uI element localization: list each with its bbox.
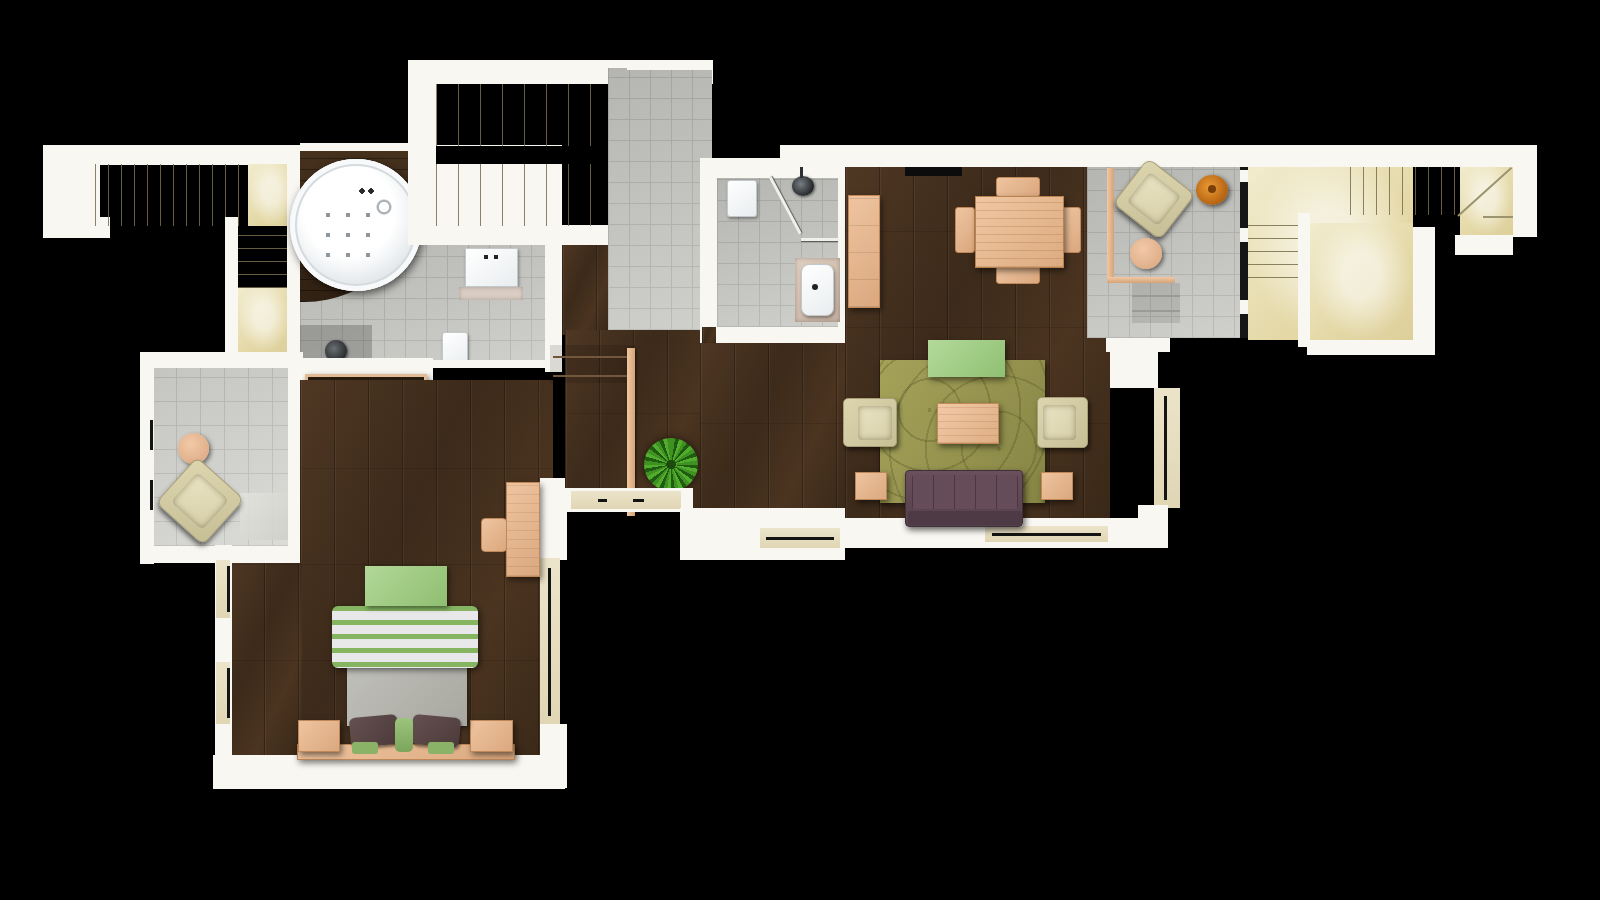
wall-notch — [1240, 228, 1248, 242]
desk-chair — [481, 518, 507, 552]
tall-cabinet — [848, 195, 880, 308]
west-stair-flight-vertical — [238, 226, 290, 288]
sofa-seat — [912, 475, 1018, 509]
stairwell-void-band — [436, 146, 608, 164]
dining-table — [975, 196, 1064, 268]
dining-chair-top — [996, 177, 1040, 197]
window-tick — [227, 668, 230, 718]
window-tick — [992, 533, 1101, 536]
terrace-west-step-patch — [240, 493, 292, 540]
west-stair-lower-run — [238, 288, 290, 352]
reading-rail-vertical — [1107, 168, 1114, 283]
living-right-wall-jut — [1110, 352, 1158, 388]
hallway-step-edge-1 — [553, 356, 633, 358]
reading-rail-horizontal — [1107, 277, 1175, 283]
bed-foot-bench-green — [365, 566, 447, 606]
dining-chair-right — [1061, 207, 1081, 253]
window-tick — [548, 568, 551, 716]
armchair-cushion — [858, 406, 892, 440]
washbasin-bath2 — [801, 264, 834, 316]
bath2-left-wall — [700, 158, 717, 328]
toilet-bath2 — [727, 180, 757, 217]
window-tick — [150, 480, 153, 510]
stairwell-lower-flight — [436, 164, 608, 226]
hall-bottom-window — [571, 491, 681, 509]
terrace-west-top-wall — [140, 352, 303, 368]
east-bottom-wall — [1307, 340, 1435, 355]
window-tick — [766, 537, 834, 540]
bedroom-bottom-wall — [213, 755, 565, 789]
side-table-west — [855, 472, 887, 500]
east-stair-divider-wall — [1298, 213, 1310, 347]
bed-green-accent — [428, 742, 454, 754]
bedroom-right-corner-wall — [540, 724, 567, 788]
living-room-wood-floor-left — [700, 343, 845, 520]
lamp-center — [1208, 185, 1216, 193]
bath1-bottom-thin-wall — [430, 360, 548, 368]
hallway-steps-zone — [550, 345, 635, 383]
window-tick — [633, 499, 644, 502]
bath1-bath-mat — [459, 287, 523, 300]
basin-drain — [812, 284, 818, 290]
reading-corner-step — [1132, 283, 1180, 323]
bed-green-accent — [352, 742, 378, 754]
nightstand-left — [298, 720, 340, 752]
stair-hall-tile-floor — [608, 68, 712, 330]
bath2-bottom-wall — [700, 327, 845, 343]
shower-head-icon — [792, 176, 814, 196]
sofa-backrest — [908, 511, 1022, 525]
side-table-east — [1041, 472, 1073, 500]
living-right-corner-wall — [1138, 505, 1168, 548]
desk — [506, 482, 540, 577]
living-window-right — [1154, 388, 1180, 508]
stair-hall-top-wall — [627, 60, 713, 70]
shower-screen-edge — [801, 238, 838, 241]
east-lower-landing — [1310, 223, 1413, 340]
window-tick — [150, 420, 153, 450]
floor-plan-canvas — [0, 0, 1600, 900]
armchair-west — [843, 398, 897, 447]
terrace-west-left-wall — [140, 352, 154, 564]
jacuzzi-jets — [316, 185, 400, 269]
potted-plant-1 — [644, 438, 698, 491]
wall-notch — [1240, 300, 1248, 314]
east-under-winder-wall — [1455, 235, 1513, 255]
east-stair-winder — [1460, 167, 1513, 235]
tv-wall-unit — [905, 167, 962, 176]
hallway-wood-upper — [562, 245, 608, 335]
stairwell-upper-flight — [436, 84, 608, 146]
west-stair-inner-wall — [225, 217, 238, 352]
window-tick — [598, 499, 607, 502]
window-tick — [227, 566, 230, 612]
stairwell-bottom-wall — [408, 225, 608, 245]
reading-side-table — [1130, 238, 1162, 269]
dining-chair-left — [955, 207, 975, 253]
bath2-door-gap — [702, 327, 716, 343]
window-tick — [1164, 396, 1167, 500]
living-top-wall — [780, 145, 1247, 167]
green-ottoman — [928, 340, 1005, 377]
bed-striped-duvet — [332, 606, 478, 668]
washbasin-taps-icon — [482, 252, 500, 262]
east-outer-wall — [1513, 145, 1537, 237]
coffee-table — [937, 403, 999, 444]
step-edge — [1132, 310, 1180, 312]
wall-notch — [1240, 170, 1248, 182]
stairwell-left-wall — [408, 60, 437, 245]
east-top-wall — [1220, 145, 1537, 167]
east-right-wall — [1413, 227, 1435, 350]
east-inner-flight — [1248, 213, 1298, 278]
armchair-cushion — [1043, 405, 1076, 440]
armchair-east — [1037, 397, 1088, 448]
hallway-step-edge-2 — [553, 375, 633, 377]
sofa-purple — [905, 470, 1023, 527]
step-edge — [1132, 295, 1180, 297]
bed-green-runner — [395, 718, 413, 752]
bedroom-wood-floor-left — [230, 563, 302, 757]
nightstand-right — [470, 720, 513, 752]
armchair-cushion — [1127, 172, 1182, 227]
jacuzzi-faucet-icon — [358, 185, 376, 197]
armchair-cushion — [171, 472, 229, 530]
winder-tread-line — [1483, 216, 1513, 218]
east-stair-flight — [1350, 167, 1460, 215]
